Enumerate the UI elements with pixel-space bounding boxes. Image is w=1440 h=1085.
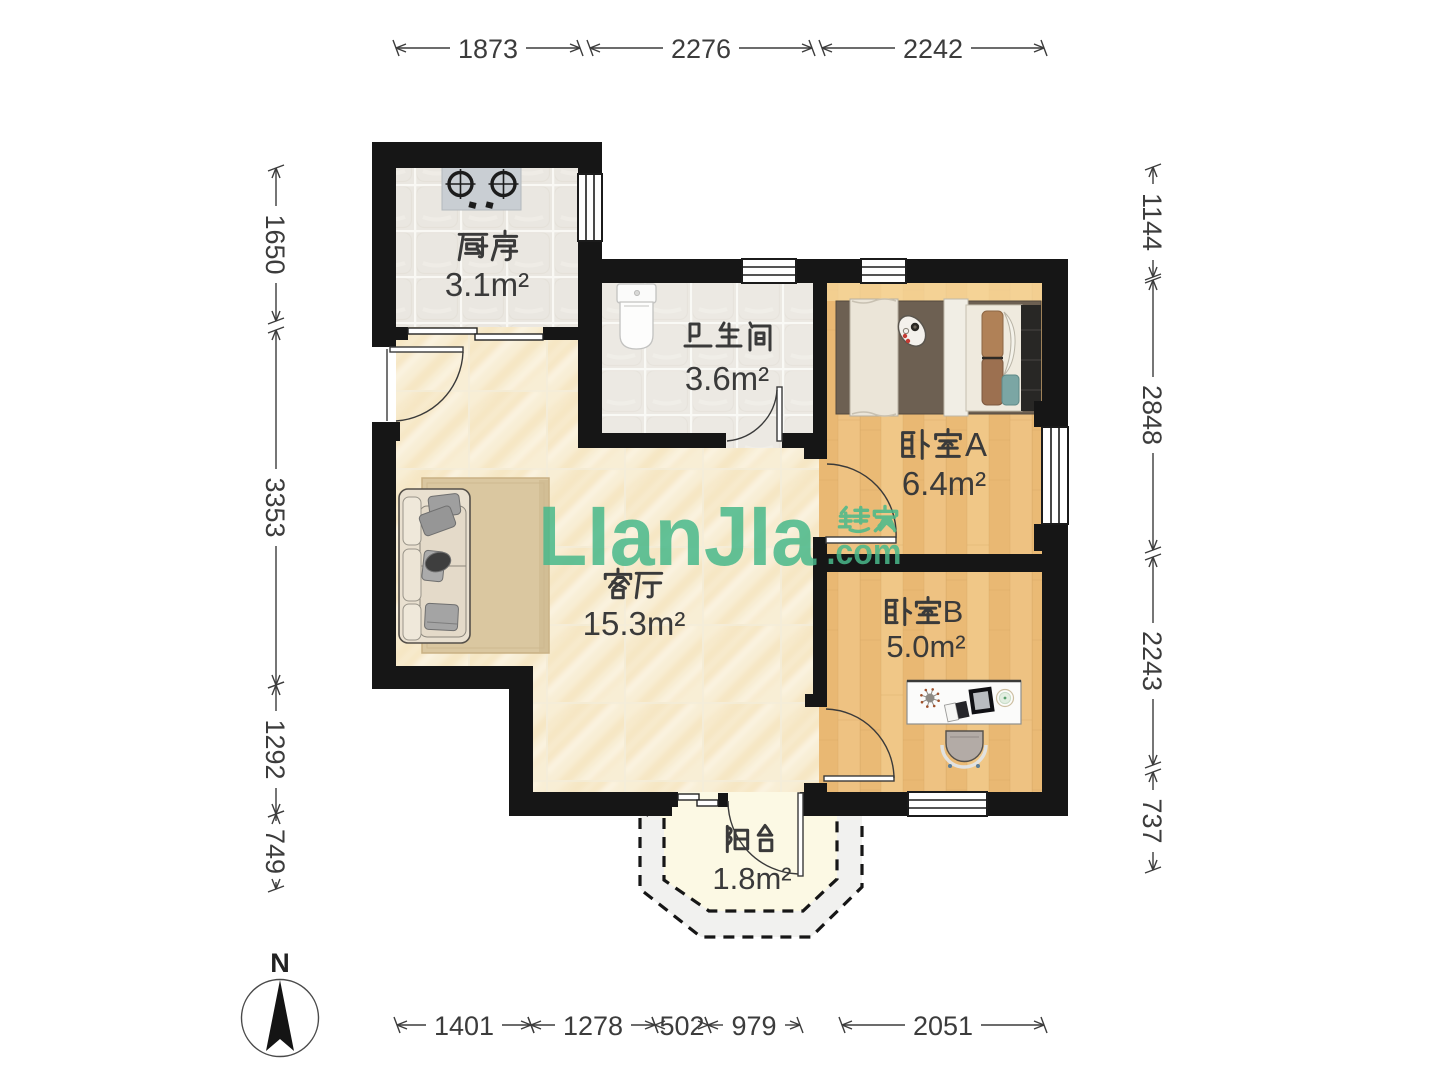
svg-text:2242: 2242: [903, 34, 963, 64]
svg-text:2848: 2848: [1137, 385, 1167, 445]
svg-text:2243: 2243: [1137, 631, 1167, 691]
svg-text:1873: 1873: [458, 34, 518, 64]
svg-text:2051: 2051: [913, 1011, 973, 1041]
svg-text:3353: 3353: [260, 477, 290, 537]
svg-text:.com: .com: [827, 531, 902, 572]
svg-text:2276: 2276: [671, 34, 731, 64]
svg-text:1278: 1278: [563, 1011, 623, 1041]
svg-text:N: N: [270, 948, 290, 978]
svg-text:6.4m²: 6.4m²: [902, 465, 986, 502]
svg-text:1401: 1401: [434, 1011, 494, 1041]
svg-text:A: A: [965, 426, 987, 463]
svg-text:3.1m²: 3.1m²: [445, 266, 529, 303]
svg-text:749: 749: [260, 829, 290, 874]
svg-text:3.6m²: 3.6m²: [685, 360, 769, 397]
svg-text:LIanJIa: LIanJIa: [538, 489, 817, 583]
svg-text:5.0m²: 5.0m²: [886, 629, 965, 664]
svg-text:1650: 1650: [260, 214, 290, 274]
svg-text:979: 979: [731, 1011, 776, 1041]
svg-text:1144: 1144: [1137, 193, 1167, 251]
svg-text:1.8m²: 1.8m²: [712, 861, 791, 896]
svg-text:502: 502: [659, 1011, 704, 1041]
svg-text:15.3m²: 15.3m²: [583, 605, 686, 642]
svg-text:737: 737: [1137, 798, 1167, 843]
svg-text:1292: 1292: [260, 719, 290, 779]
svg-text:B: B: [943, 594, 964, 629]
